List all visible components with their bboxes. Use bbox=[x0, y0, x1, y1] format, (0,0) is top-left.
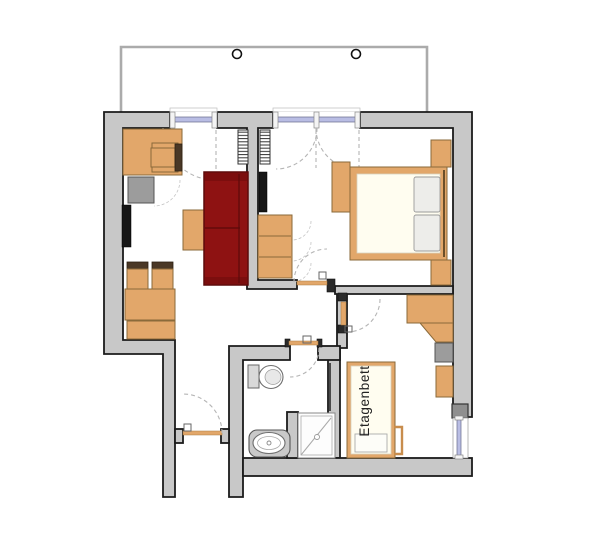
floor-plan: Etagenbett bbox=[0, 0, 600, 554]
bedroom-threshold bbox=[297, 281, 327, 285]
door-swing-arc-left bbox=[276, 128, 317, 169]
bunk-bed: Etagenbett bbox=[347, 362, 402, 458]
entry-jamb-left bbox=[175, 429, 183, 443]
bedroom-door-jamb bbox=[327, 279, 335, 292]
chair-back bbox=[175, 144, 182, 171]
bedroom-door bbox=[294, 249, 327, 285]
floor-plan-canvas: Etagenbett bbox=[0, 0, 600, 554]
window-frame-right bbox=[355, 112, 360, 128]
wall-bathroom-top-right bbox=[318, 346, 340, 360]
living-room bbox=[122, 129, 248, 339]
kids-cabinet-wood bbox=[436, 366, 453, 397]
kids-corner-closet bbox=[420, 323, 453, 342]
sideboard bbox=[127, 321, 175, 339]
nightstand-top bbox=[431, 140, 451, 167]
chair-back bbox=[152, 262, 173, 269]
radiator-living bbox=[238, 130, 248, 164]
living-tv bbox=[122, 205, 131, 247]
mini-fridge bbox=[128, 177, 154, 203]
chair-seat bbox=[152, 269, 173, 289]
shelf-door-swing-2 bbox=[292, 242, 311, 261]
nightstand-bottom bbox=[431, 260, 451, 285]
toilet-tank bbox=[248, 365, 259, 388]
kids-room-window bbox=[452, 404, 468, 459]
bedroom-tv bbox=[259, 172, 267, 212]
entry-swing-arc bbox=[183, 394, 222, 433]
shelf-unit bbox=[258, 215, 292, 278]
toilet-bowl-inner bbox=[265, 370, 281, 385]
balcony-door-bedroom bbox=[273, 108, 360, 170]
dining-chair-2 bbox=[152, 262, 173, 289]
bathroom-door bbox=[289, 336, 319, 377]
kids-wardrobe bbox=[407, 295, 453, 323]
chair-back bbox=[127, 262, 148, 269]
toilet bbox=[248, 365, 283, 389]
shower bbox=[298, 413, 335, 458]
bunk-bed-label: Etagenbett bbox=[357, 365, 372, 436]
dining-chair-1 bbox=[127, 262, 148, 289]
window-frame-top bbox=[455, 416, 463, 420]
kids-cabinet-gray bbox=[435, 343, 453, 362]
radiator-bedroom bbox=[260, 130, 270, 164]
sofa-armrest-top bbox=[205, 173, 247, 181]
bathroom-swing-arc bbox=[290, 348, 319, 377]
kids-room: Etagenbett bbox=[347, 295, 453, 458]
window-frame-right bbox=[212, 112, 217, 128]
chair-seat bbox=[127, 269, 148, 289]
sofa-armrest-bottom bbox=[205, 277, 247, 284]
hall bbox=[258, 215, 311, 282]
pillow-left bbox=[414, 177, 440, 212]
pillow-right bbox=[414, 215, 440, 251]
kids-threshold bbox=[341, 302, 346, 325]
dining-table bbox=[125, 289, 175, 320]
window-glazing bbox=[457, 419, 461, 457]
entry-door bbox=[183, 394, 222, 435]
window-sill bbox=[170, 108, 217, 112]
entry-handle-bracket bbox=[184, 424, 191, 431]
window-sill bbox=[273, 108, 360, 112]
chair-seat bbox=[151, 148, 175, 167]
window-frame-center bbox=[314, 112, 319, 128]
shower-drain bbox=[315, 435, 320, 440]
window-frame-bottom bbox=[455, 455, 463, 459]
balcony-post-left bbox=[233, 50, 242, 59]
wall-bottom bbox=[243, 458, 472, 476]
bedroom-handle-bracket bbox=[319, 272, 326, 279]
desk-chair bbox=[151, 143, 182, 172]
window-glazing bbox=[172, 117, 215, 122]
balcony-railing bbox=[121, 47, 427, 112]
window-frame-left bbox=[170, 112, 175, 128]
double-bed bbox=[350, 167, 447, 260]
window-frame-left bbox=[273, 112, 278, 128]
balcony bbox=[121, 47, 427, 112]
washbasin bbox=[249, 430, 290, 457]
balcony-post-right bbox=[352, 50, 361, 59]
kids-door-jamb-top bbox=[338, 293, 347, 301]
shelf-door-swing-1 bbox=[292, 221, 311, 240]
fridge-door-swing bbox=[154, 180, 180, 206]
entry-threshold bbox=[183, 431, 222, 435]
sofa bbox=[204, 172, 248, 285]
bedroom-wardrobe bbox=[332, 162, 350, 212]
